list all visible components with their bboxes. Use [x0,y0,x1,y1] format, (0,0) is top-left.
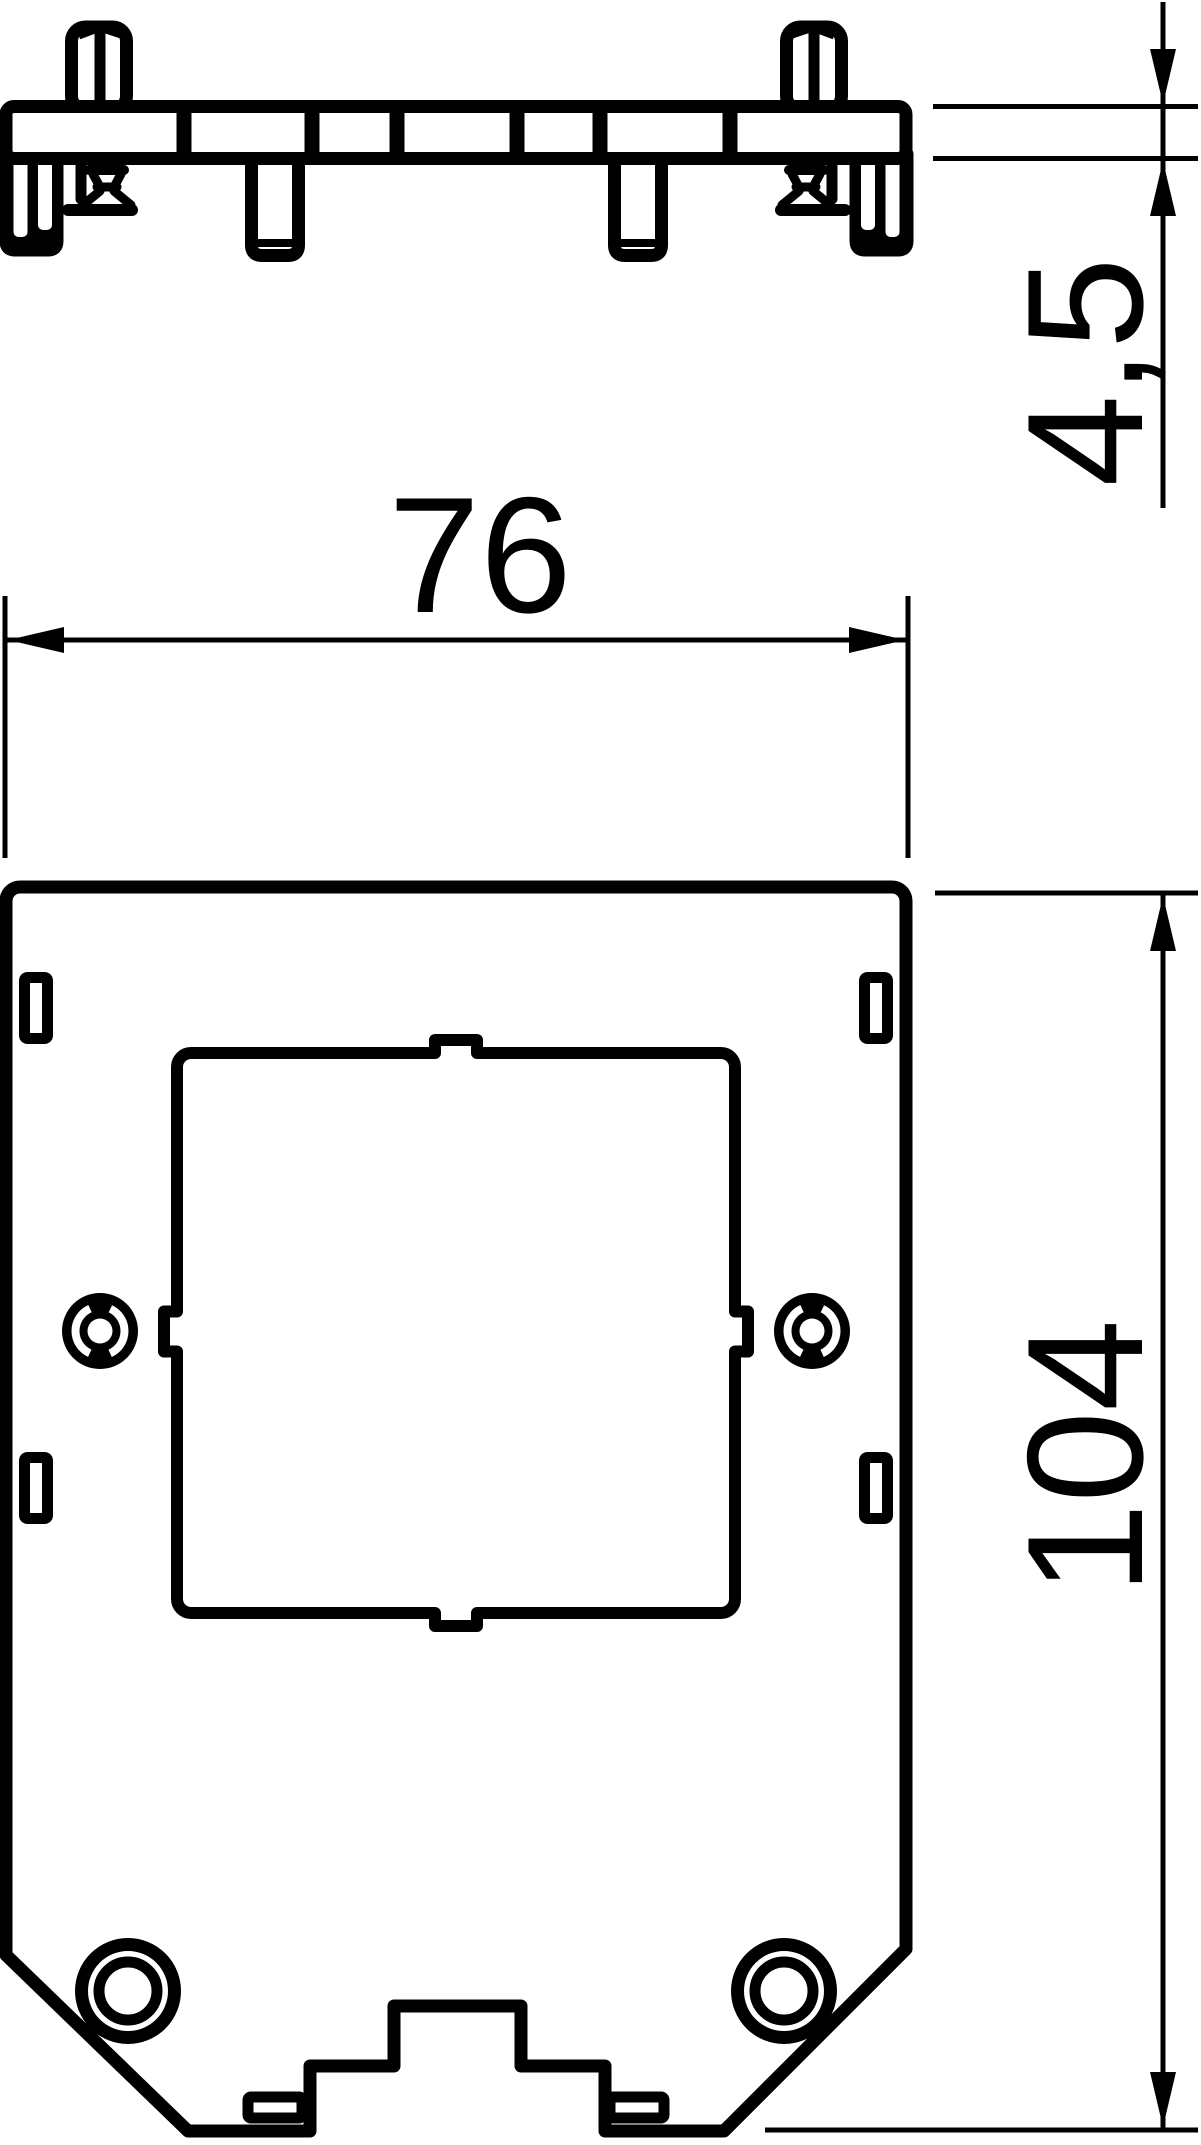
peg-left [252,158,299,256]
slot-top-left [25,978,48,1039]
peg-right [615,158,662,256]
screw-right [781,160,845,210]
slot-top-right [865,978,888,1039]
arrowhead-up [1150,161,1176,216]
plate-profile-bar [6,107,906,159]
dimension-thickness: 4,5 [933,2,1198,508]
clip-left [72,27,127,110]
dim-label-height: 104 [993,1319,1177,1594]
dim-label-width: 76 [388,463,572,647]
screw-boss-right [774,1293,850,1369]
screw-left [68,160,132,210]
side-profile-view [6,27,907,256]
slot-bottom-left [25,1458,48,1519]
device-opening [164,1040,748,1626]
bottom-slot-right [610,2097,664,2118]
dim-label-thickness: 4,5 [993,257,1177,486]
screw-boss-left [62,1293,138,1369]
arrowhead-down [1150,2072,1176,2127]
front-view [6,887,906,2131]
clip-right [787,27,842,110]
slot-bottom-right [865,1458,888,1519]
dimension-width: 76 [5,463,908,858]
arrowhead-left [8,627,64,653]
drawing-canvas: 76 4,5 104 [0,0,1201,2145]
arrowhead-down [1150,49,1176,104]
bottom-slot-left [248,2097,302,2118]
arrowhead-right [849,627,905,653]
arrowhead-up [1150,896,1176,951]
